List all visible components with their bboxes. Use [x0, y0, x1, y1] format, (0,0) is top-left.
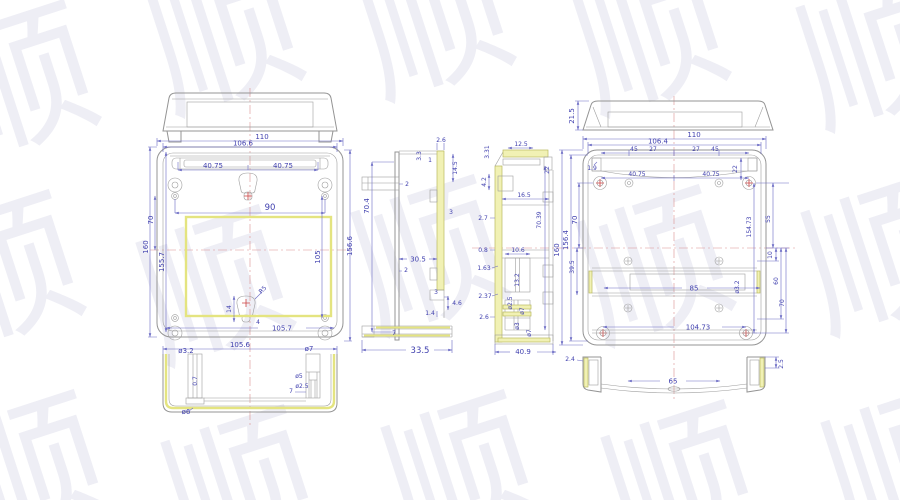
dim-front-slot-left: 40.75	[203, 162, 223, 170]
dim-front-keyhole-radius: R5	[258, 285, 269, 296]
dim-sidea-height: 70.4	[363, 198, 371, 214]
dim-front-width-inner: 106.6	[233, 140, 254, 148]
dim-bsec-boss-dia: ø7	[305, 345, 314, 353]
dim-back-slot-right: 40.75	[702, 171, 719, 178]
view-side-section-a: 3.3 1 2.6 14.5 2 70.4 3 30.5 2 3 4.6 1.4…	[362, 137, 462, 356]
dim-sidea-step2: 3	[434, 289, 438, 296]
side-a-section-wall	[437, 151, 444, 290]
pcb-highlight	[186, 217, 331, 316]
back-bosses	[594, 177, 756, 340]
dim-front-height-outer: 160	[142, 240, 150, 253]
boss-left	[188, 354, 202, 398]
drawing-sheet: 顺 顺 顺 顺 顺 顺 顺 顺 顺 顺 顺 顺 顺 顺 顺	[0, 0, 900, 500]
dim-sideb-lip: 4.2	[481, 177, 488, 187]
dim-front-hole-span: 90	[265, 203, 276, 213]
view-front: 110 106.6 40.75 40.75 90 70 160 155.7 10…	[142, 133, 354, 341]
dim-back-pos27-right: 27	[692, 146, 700, 153]
dim-bsec-base-dia: ø6	[182, 408, 191, 416]
dim-lidsec-wall-left: 2.4	[565, 356, 575, 363]
dim-sideb-pocket-w: 10.6	[511, 247, 525, 254]
dim-sidea-wall: 2	[405, 181, 409, 188]
back-red-crosshairs	[596, 179, 753, 337]
dim-sideb-flange: 22	[544, 166, 551, 174]
side-b-wall	[495, 166, 502, 342]
lid-side-outline	[583, 101, 773, 130]
dim-sideb-shelf: 16.5	[517, 192, 531, 199]
boss-right	[306, 354, 320, 398]
dim-back-lid-height: 21.5	[568, 108, 576, 124]
dim-back-pos27-left: 27	[649, 146, 657, 153]
dim-sideb-pocket-d: 13.2	[514, 273, 521, 287]
dim-sideb-screw: ø3	[514, 322, 521, 330]
dim-sidea-step: 3	[449, 209, 453, 216]
keyhole-top	[239, 173, 257, 193]
back-outline	[583, 150, 766, 345]
dim-sideb-pilot: ø2.5	[507, 296, 514, 309]
dim-back-height-outer: 160	[553, 243, 561, 256]
dim-lidsec-wall-right: 2.5	[778, 359, 785, 369]
red-crosshairs	[242, 192, 252, 307]
dim-sideb-rib: 3.31	[484, 145, 491, 159]
dim-back-off55: 55	[765, 215, 772, 223]
dim-back-width-inner: 106.4	[648, 138, 669, 146]
dim-front-height-inner: 155.7	[158, 252, 166, 272]
dim-front-height-right: 156.6	[346, 235, 354, 256]
dim-bsec-depth: 7	[289, 388, 293, 395]
dim-bsec-wall: 0.7	[192, 376, 199, 386]
dim-front-left-offset: 70	[147, 216, 155, 225]
dim-back-tab: 22	[732, 165, 739, 173]
dim-back-bottom-span: 104.73	[686, 324, 711, 332]
view-back: 21.5 110 106.4 45 27 27 45 1.9 40.75 40.…	[553, 101, 789, 345]
dim-back-off10: 10	[767, 251, 774, 259]
dim-sidea-channel: 7	[392, 330, 396, 337]
dim-front-keyhole-height: 14	[226, 305, 233, 313]
dim-front-bottom-span: 105.7	[272, 325, 292, 333]
dim-bsec-hole-dia: ø3.2	[178, 347, 193, 355]
dim-back-wall: 1.9	[587, 165, 597, 172]
dim-sidea-width: 33.5	[411, 346, 430, 356]
dim-sideb-height: 70.39	[536, 211, 543, 228]
dim-back-pos45-left: 45	[630, 146, 638, 153]
dim-back-boss-span: 85	[690, 285, 699, 293]
dim-sidea-wall2: 2	[404, 267, 408, 274]
dim-back-off70: 70	[779, 299, 786, 307]
dim-back-slot-left: 40.75	[628, 171, 645, 178]
dim-sidea-notch: 4.6	[452, 300, 462, 307]
dim-sideb-wall: 2.7	[478, 215, 488, 222]
dim-front-right-span: 105	[314, 250, 322, 263]
dim-sidea-depth: 30.5	[410, 256, 426, 264]
dim-back-off60: 60	[773, 277, 780, 285]
dim-bsec-width: 105.6	[230, 341, 251, 349]
dim-back-offset395: 39.5	[569, 260, 576, 274]
dim-front-slot-right: 40.75	[273, 162, 293, 170]
dim-lidsec-width: 65	[669, 378, 678, 386]
dim-sidea-ledge: 1.4	[425, 310, 435, 317]
cad-drawing: 110 106.6 40.75 40.75 90 70 160 155.7 10…	[0, 0, 900, 500]
dim-sidea-rib: 3.3	[416, 151, 423, 161]
dim-back-right-span: 154.73	[746, 216, 753, 237]
dim-sideb-base: 2.6	[479, 314, 489, 321]
dim-sideb-width: 40.9	[515, 348, 531, 356]
dim-back-offset70: 70	[571, 216, 579, 225]
dim-sideb-top: 12.5	[514, 141, 528, 148]
dim-back-width-outer: 110	[687, 131, 700, 139]
view-lid-section: 2.4 2.5 65	[565, 356, 785, 393]
dim-sideb-ledge: 1.63	[477, 265, 491, 272]
dim-sideb-boss2: ø7	[526, 329, 533, 337]
dim-sidea-lip: 1	[428, 157, 432, 164]
dim-sideb-boss: ø7	[519, 307, 526, 315]
dim-bsec-pilot-dia: ø2.5	[295, 383, 308, 390]
dim-front-width-outer: 110	[255, 133, 268, 141]
side-a-wall	[395, 152, 399, 340]
dim-bsec-cbore-dia: ø5	[295, 373, 303, 380]
dim-front-keyhole-width: 4	[256, 319, 260, 326]
dim-sideb-step: 2.37	[478, 293, 492, 300]
dim-back-boss-dia: ø3.2	[734, 280, 741, 293]
dim-sidea-top: 2.6	[436, 137, 446, 144]
view-side-section-b: 3.31 12.5 22 4.2 16.5 2.7 70.39 0.8 10.6…	[477, 141, 556, 356]
dim-sidea-flange: 14.5	[452, 161, 459, 175]
dim-back-pos45-right: 45	[711, 146, 719, 153]
dim-sideb-gap: 0.8	[478, 247, 488, 254]
dim-back-height-inner: 156.4	[562, 229, 570, 250]
